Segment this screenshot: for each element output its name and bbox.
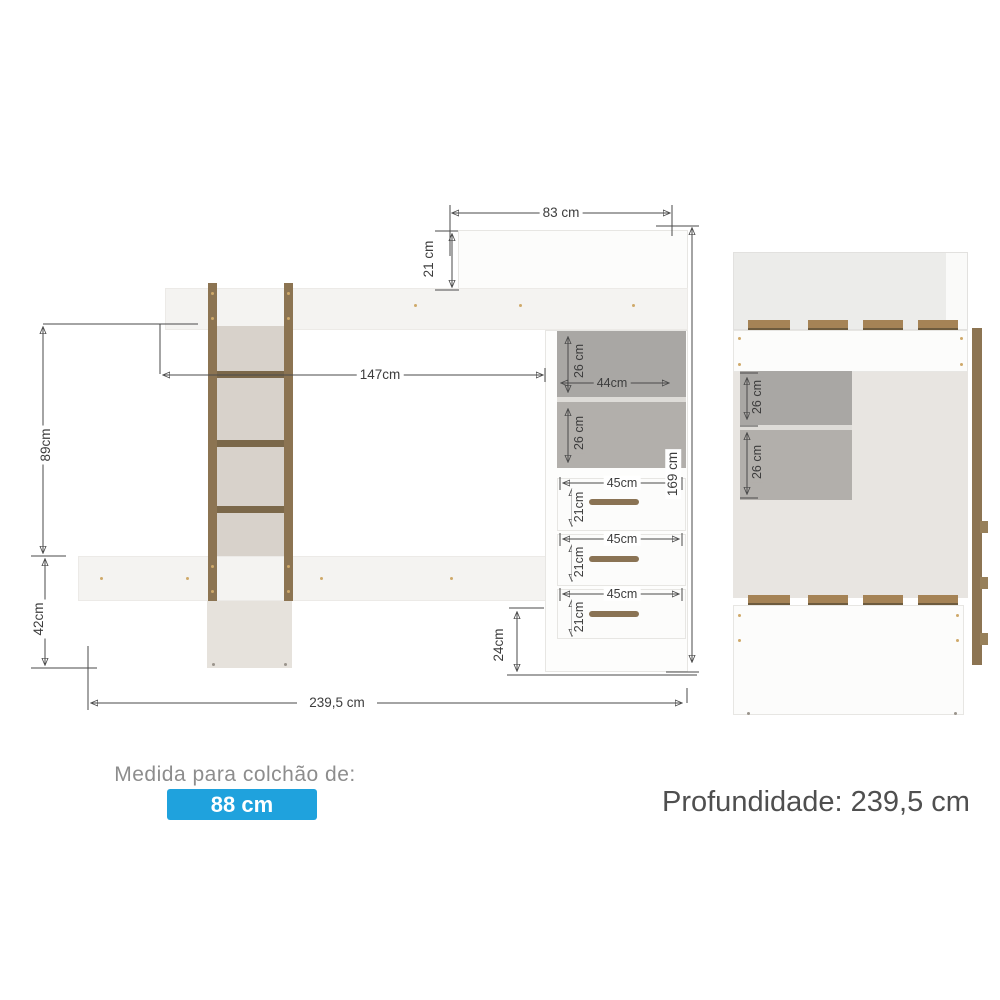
mattress-size-caption: Medida para colchão de:	[114, 763, 356, 787]
dim-label-side-niche-bottom: 26 cm	[750, 442, 764, 482]
dim-label-drawer1-height: 21cm	[572, 489, 586, 526]
dim-label-niche-top: 26 cm	[572, 341, 586, 381]
dimension-lines-layer	[0, 0, 1000, 1000]
dimension-arrows	[43, 213, 747, 703]
dim-label-drawer3-height: 21cm	[572, 599, 586, 636]
dim-label-drawer2-height: 21cm	[572, 544, 586, 581]
dim-label-drawer1-width: 45cm	[604, 476, 641, 490]
dim-label-base-height: 24cm	[491, 625, 507, 664]
dim-label-drawer2-width: 45cm	[604, 532, 641, 546]
furniture-dimension-diagram: 83 cm 21 cm 147cm 89cm 42cm 239,5 cm 169…	[0, 0, 1000, 1000]
depth-label: Profundidade: 239,5 cm	[662, 786, 970, 819]
dim-label-ladder-to-desk: 147cm	[357, 367, 404, 383]
dim-label-top-width: 83 cm	[540, 205, 583, 221]
dim-label-total-height: 169 cm	[665, 449, 681, 499]
dim-label-headboard-height: 21 cm	[421, 238, 437, 281]
dim-label-side-niche-top: 26 cm	[750, 377, 764, 417]
mattress-size-badge: 88 cm	[167, 789, 317, 820]
extension-lines	[31, 205, 758, 710]
dim-label-total-width: 239,5 cm	[306, 695, 368, 711]
dim-label-lower-gap: 42cm	[31, 599, 47, 638]
dim-label-niche-width: 44cm	[594, 376, 631, 390]
dim-label-upper-gap: 89cm	[38, 425, 54, 464]
dim-label-drawer3-width: 45cm	[604, 587, 641, 601]
dim-label-niche-bottom: 26 cm	[572, 413, 586, 453]
